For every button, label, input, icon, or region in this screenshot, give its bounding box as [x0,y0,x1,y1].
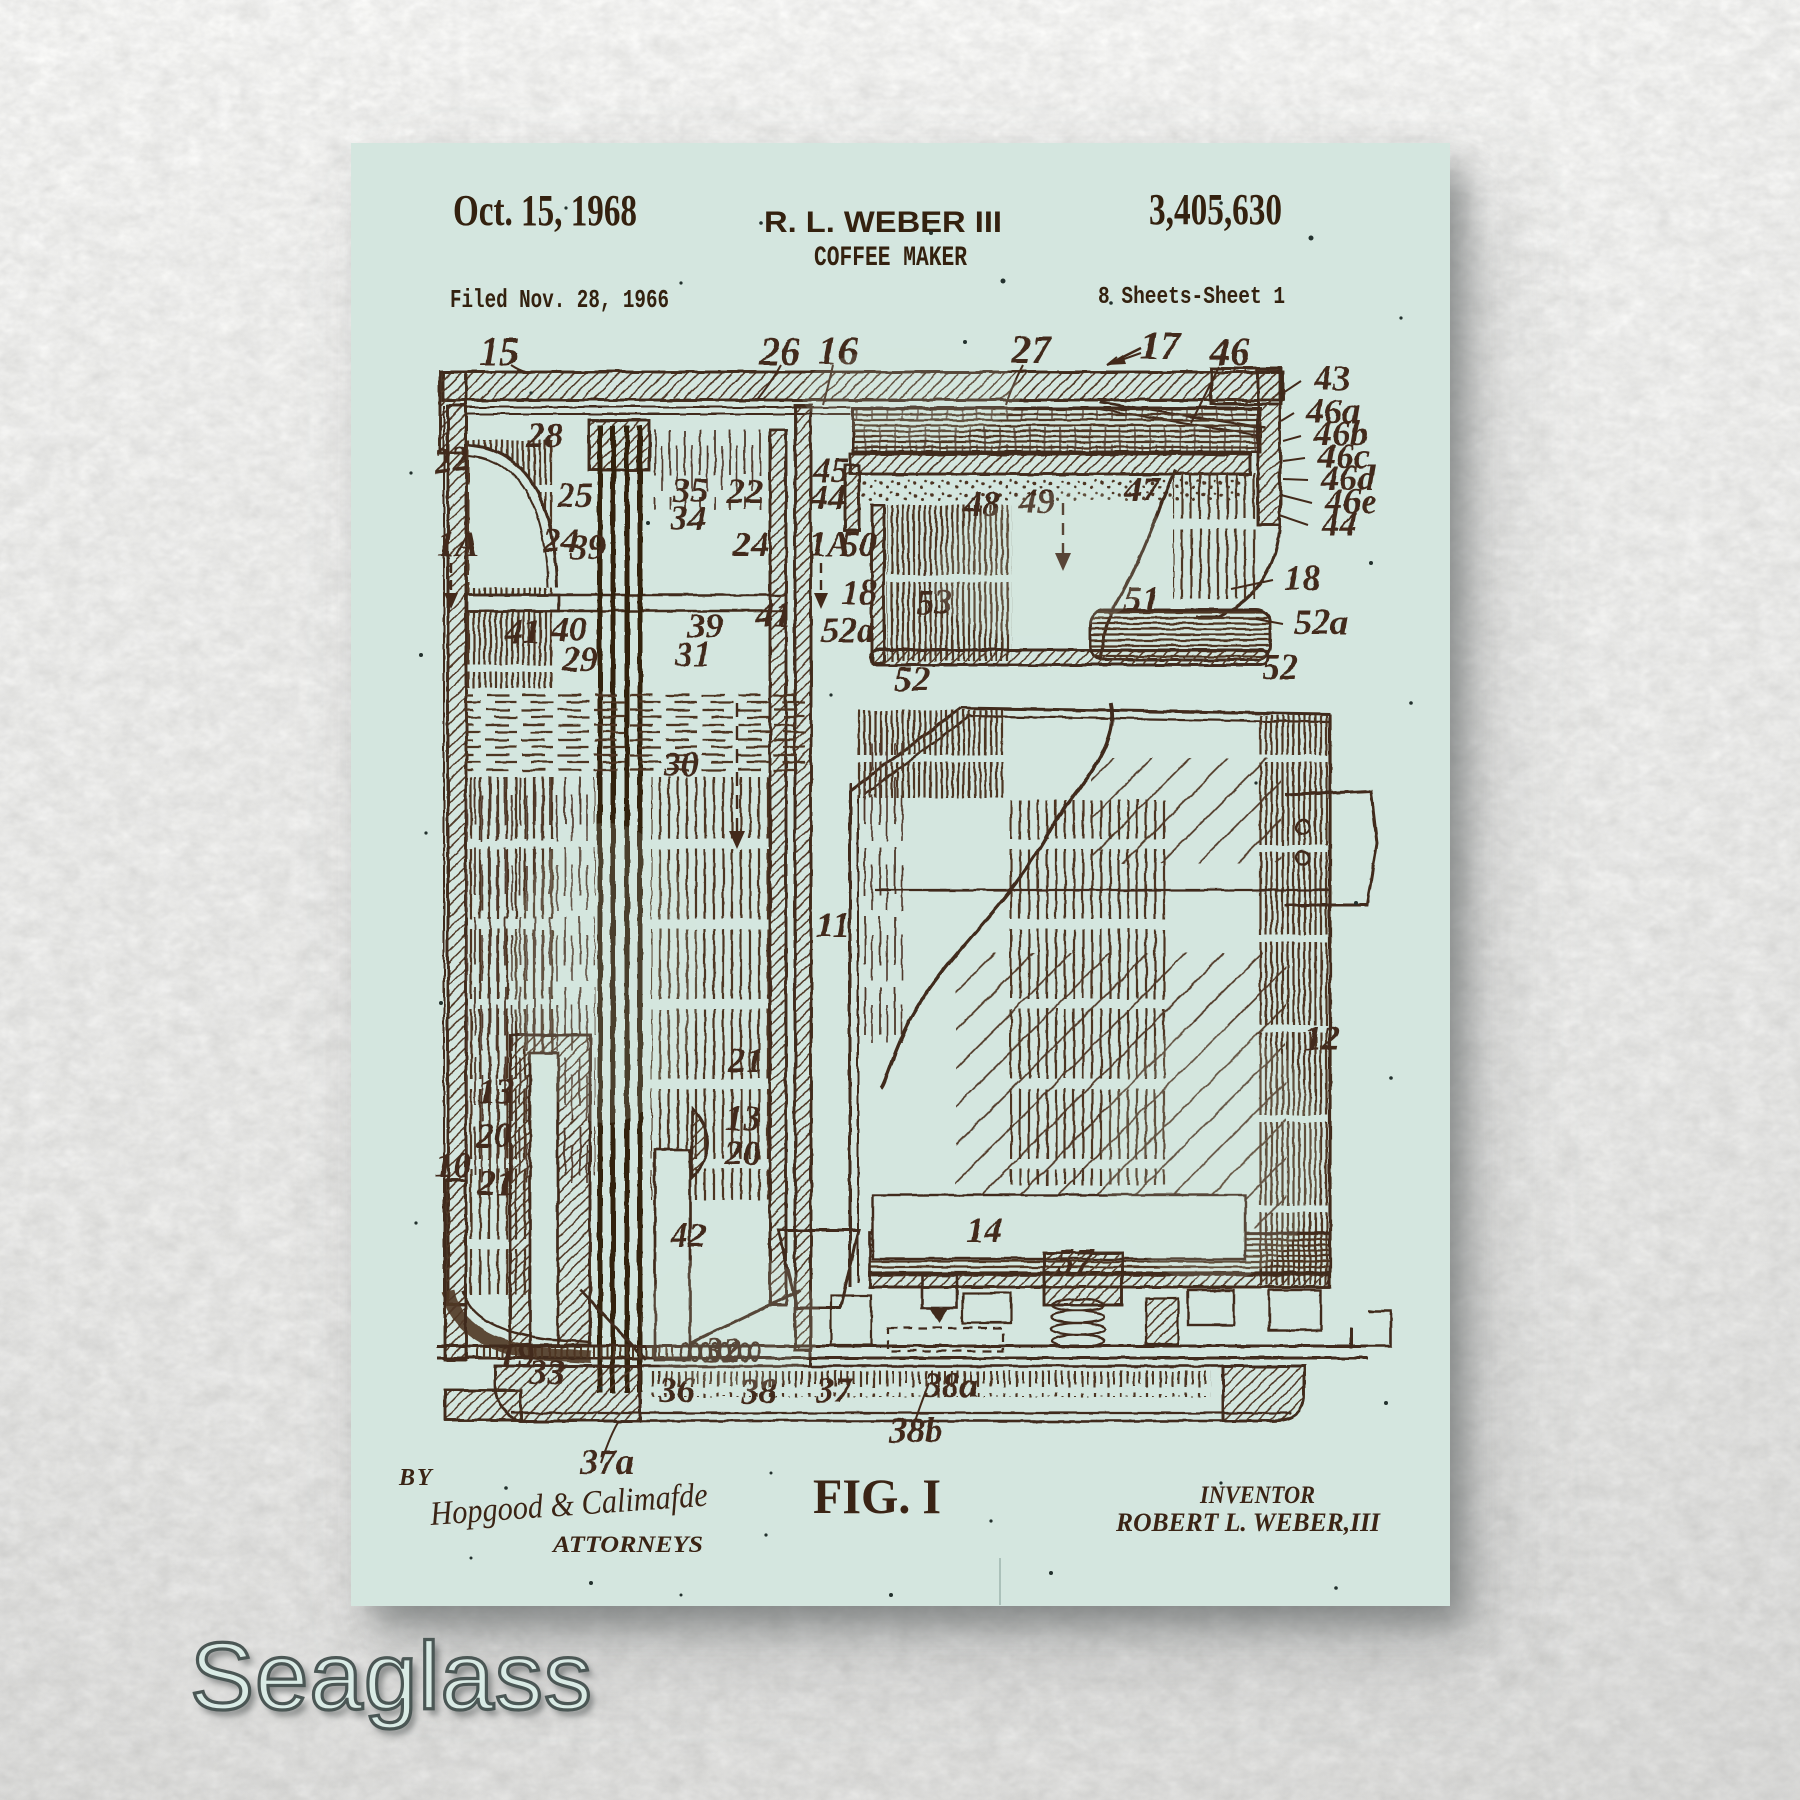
svg-text:21: 21 [727,1040,764,1080]
svg-text:1A: 1A [437,524,479,564]
svg-text:22: 22 [726,471,763,511]
svg-text:8 Sheets-Sheet 1: 8 Sheets-Sheet 1 [1098,284,1285,311]
svg-text:24: 24 [732,524,769,564]
svg-text:ROBERT L. WEBER,III: ROBERT L. WEBER,III [1115,1508,1381,1537]
svg-text:52a: 52a [821,610,875,650]
svg-text:17: 17 [1140,323,1182,368]
svg-text:34: 34 [669,498,706,538]
svg-text:31: 31 [674,634,711,674]
svg-text:25: 25 [556,475,593,515]
svg-text:14: 14 [966,1210,1002,1250]
svg-text:11: 11 [816,905,850,945]
svg-text:INVENTOR: INVENTOR [1199,1482,1315,1509]
svg-text:R. L. WEBER III: R. L. WEBER III [764,206,1002,239]
svg-text:21: 21 [477,1163,514,1203]
svg-text:29: 29 [561,639,598,679]
svg-text:18: 18 [1284,558,1320,598]
svg-text:38b: 38b [888,1410,943,1450]
svg-text:37: 37 [815,1370,854,1410]
svg-text:57: 57 [1057,1241,1095,1281]
svg-text:52a: 52a [1294,602,1348,642]
svg-text:13: 13 [478,1071,514,1111]
svg-text:18: 18 [841,572,877,612]
svg-text:52: 52 [894,659,930,699]
svg-text:46: 46 [1209,329,1250,374]
svg-text:41: 41 [755,594,792,634]
svg-text:Hopgood & Calimafde: Hopgood & Calimafde [428,1477,709,1533]
svg-text:27: 27 [1010,327,1053,372]
svg-text:Oct. 15, 1968: Oct. 15, 1968 [453,186,637,235]
svg-text:39: 39 [569,527,606,567]
svg-text:BY: BY [398,1465,434,1491]
svg-text:42: 42 [669,1215,706,1255]
svg-text:44: 44 [809,477,846,517]
svg-text:50: 50 [841,524,877,564]
svg-text:Filed Nov. 28, 1966: Filed Nov. 28, 1966 [450,285,669,315]
svg-text:33: 33 [528,1352,565,1392]
svg-text:COFFEE MAKER: COFFEE MAKER [814,243,967,274]
svg-text:20: 20 [475,1115,512,1155]
svg-text:41: 41 [504,611,541,651]
svg-text:3,405,630: 3,405,630 [1149,185,1282,234]
svg-text:22: 22 [430,437,472,482]
svg-text:13: 13 [725,1098,761,1138]
svg-text:44: 44 [1320,504,1357,544]
svg-text:FIG. I: FIG. I [813,1468,941,1524]
svg-text:38a: 38a [923,1365,978,1405]
svg-text:10: 10 [435,1145,471,1185]
svg-text:12: 12 [1304,1018,1340,1058]
svg-text:30: 30 [662,744,699,784]
svg-text:20: 20 [724,1133,761,1173]
svg-text:28: 28 [526,415,563,455]
svg-text:52: 52 [1262,647,1298,687]
svg-text:ATTORNEYS: ATTORNEYS [551,1532,703,1557]
